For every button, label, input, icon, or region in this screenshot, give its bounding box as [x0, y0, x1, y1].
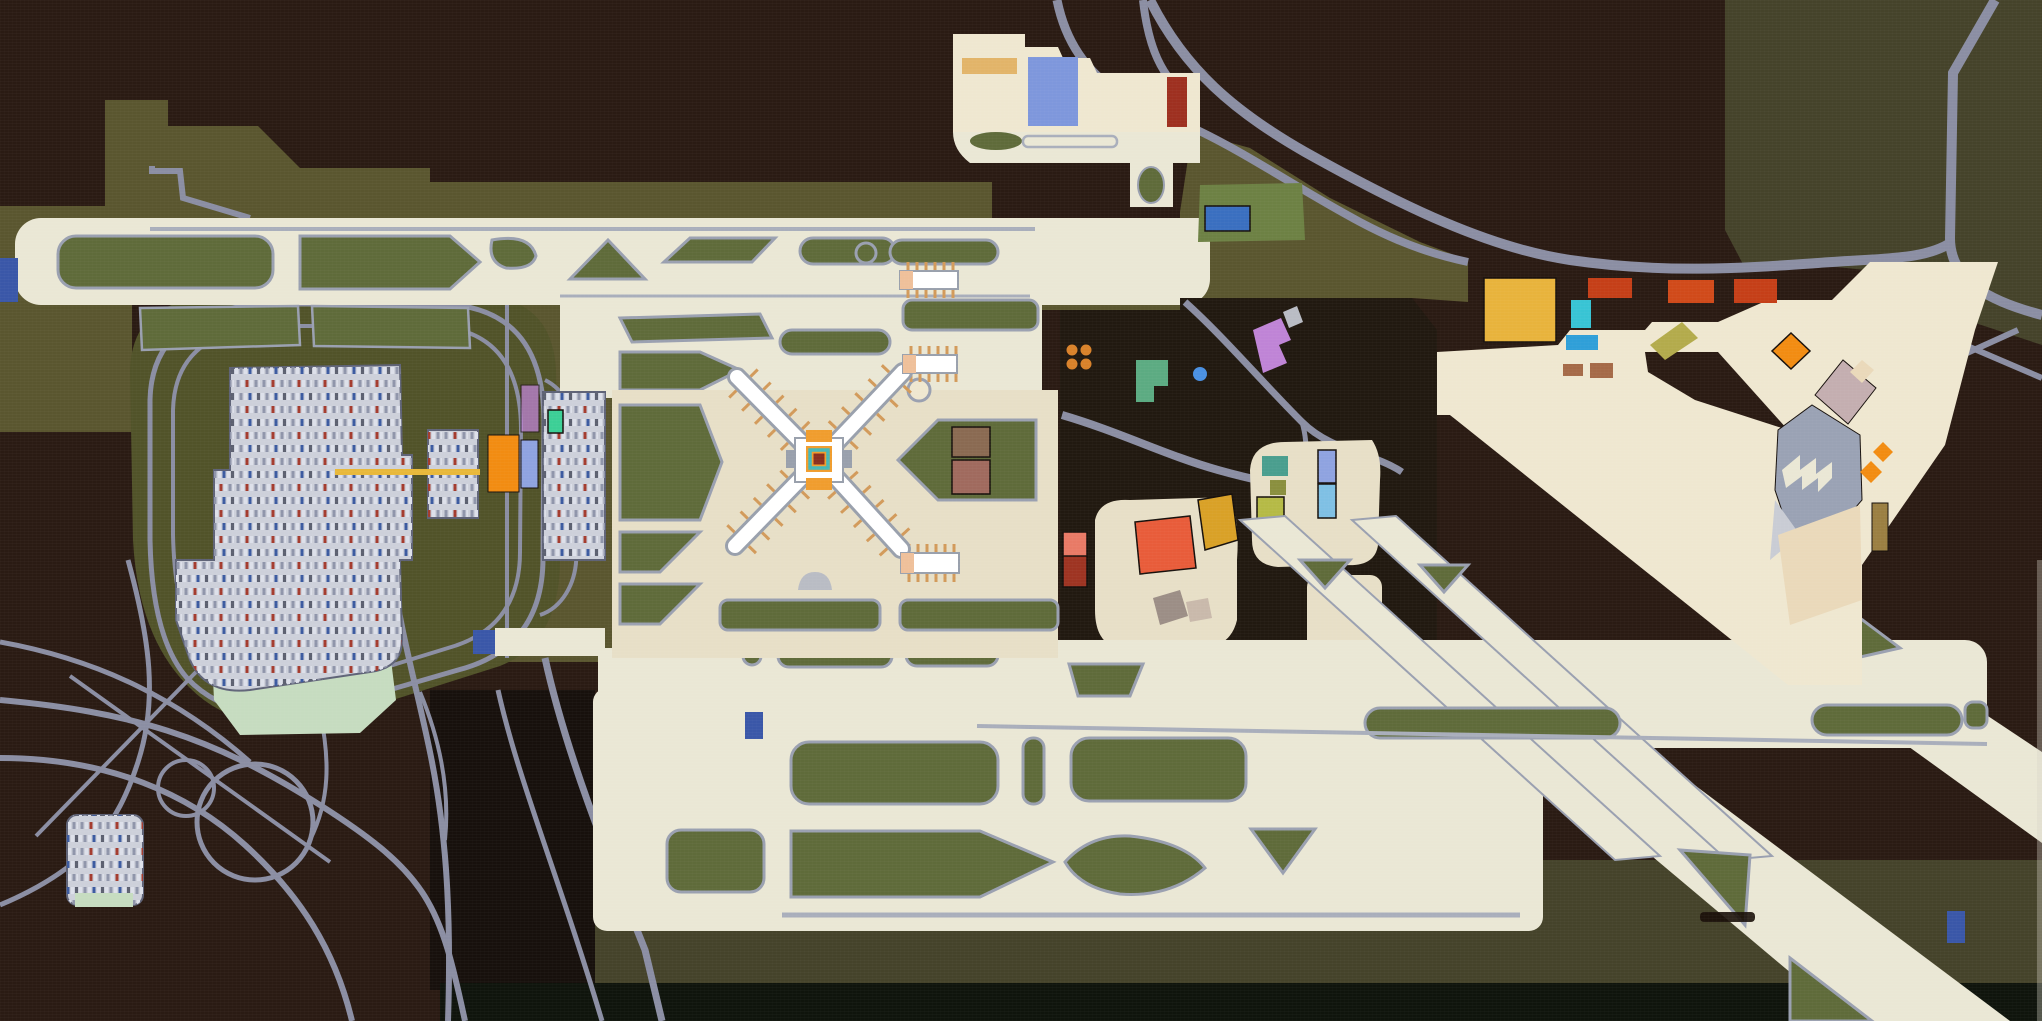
- red-warehouse-3: [1734, 279, 1777, 303]
- roundabout: [908, 379, 930, 401]
- parking-green-1: [140, 306, 300, 350]
- teal-building: [1262, 456, 1288, 476]
- painting-canvas: [0, 0, 2042, 1021]
- brick-building: [1167, 77, 1187, 127]
- dark-zone-left-of-runways: [430, 690, 595, 990]
- infield-teardrop: [491, 238, 536, 268]
- orange-dot: [1081, 359, 1092, 370]
- strip-infield-3: [1965, 702, 1987, 728]
- parking-green-2: [312, 306, 470, 348]
- infield: [1069, 664, 1143, 696]
- strip-infield-2: [1812, 705, 1962, 735]
- tomato-building: [1135, 516, 1196, 574]
- blue-building-ne: [1205, 206, 1250, 231]
- infield-oval-2: [890, 240, 998, 264]
- infield-slot: [1023, 738, 1044, 804]
- gate-bar-se-cap: [901, 553, 914, 573]
- apron-green-strip-1: [720, 600, 880, 630]
- marker-block: [745, 712, 763, 739]
- periwinkle-bar-building: [1318, 450, 1336, 483]
- gold-tram-line: [335, 469, 480, 475]
- cyan-building: [1571, 300, 1591, 328]
- red-warehouse-2: [1668, 280, 1714, 303]
- infield-large-1: [791, 742, 998, 804]
- canvas-edge-highlight: [2037, 560, 2042, 1021]
- southwest-mint-strip: [75, 893, 133, 907]
- infield-parallelogram: [620, 314, 772, 342]
- lavender-building: [521, 385, 539, 432]
- hub-orange-south: [806, 478, 832, 490]
- blue-dot-tank: [1193, 367, 1207, 381]
- mint-green-building: [548, 410, 563, 433]
- azure-building: [1566, 335, 1598, 350]
- blue-building: [1028, 57, 1078, 126]
- gate-bar-north-cap: [900, 271, 913, 289]
- marker-stub: [473, 630, 495, 654]
- infield-circle: [856, 243, 876, 263]
- apron-green-arrow: [620, 405, 722, 520]
- median-building-1: [952, 427, 990, 457]
- runway-stub-west: [495, 628, 605, 656]
- marker-diagonal: [1947, 911, 1965, 943]
- hub-center: [814, 454, 825, 465]
- gold-warehouse: [1484, 278, 1556, 342]
- beige-building: [1186, 598, 1212, 622]
- olive-brown-building: [1872, 503, 1888, 551]
- brown-building-2: [1590, 363, 1613, 378]
- skyblue-bar-building: [1318, 484, 1336, 518]
- amber-building: [1198, 494, 1238, 550]
- marker-west: [0, 258, 18, 302]
- infield-arrow: [300, 236, 480, 289]
- infield: [58, 236, 273, 288]
- brown-building-1: [1563, 364, 1583, 376]
- orange-dot: [1067, 345, 1078, 356]
- red-warehouse-1: [1588, 278, 1632, 298]
- artist-signature: [1700, 912, 1755, 922]
- infield-large-2: [1071, 738, 1246, 801]
- hub-orange-north: [806, 430, 832, 442]
- periwinkle-building: [521, 440, 538, 488]
- loop-green-island: [1138, 167, 1164, 203]
- orange-dot: [1067, 359, 1078, 370]
- orange-building: [488, 435, 519, 492]
- olive-building: [1270, 480, 1286, 495]
- apron-green-strip-2: [900, 600, 1058, 630]
- runway-band-east-thin: [1042, 218, 1210, 262]
- orange-dot: [1081, 345, 1092, 356]
- infield-oval-3: [780, 330, 890, 354]
- infield: [667, 830, 764, 892]
- gate-bar-ne-cap: [903, 355, 916, 373]
- southwest-lot-cars: [67, 815, 143, 905]
- tan-building: [962, 58, 1017, 74]
- airport-painting: [0, 0, 2042, 1021]
- dark-red-building: [1063, 556, 1087, 587]
- loop-green-oval: [970, 132, 1022, 150]
- infield-strip: [903, 300, 1038, 330]
- median-building-2: [952, 460, 990, 494]
- infield-oval: [800, 238, 895, 264]
